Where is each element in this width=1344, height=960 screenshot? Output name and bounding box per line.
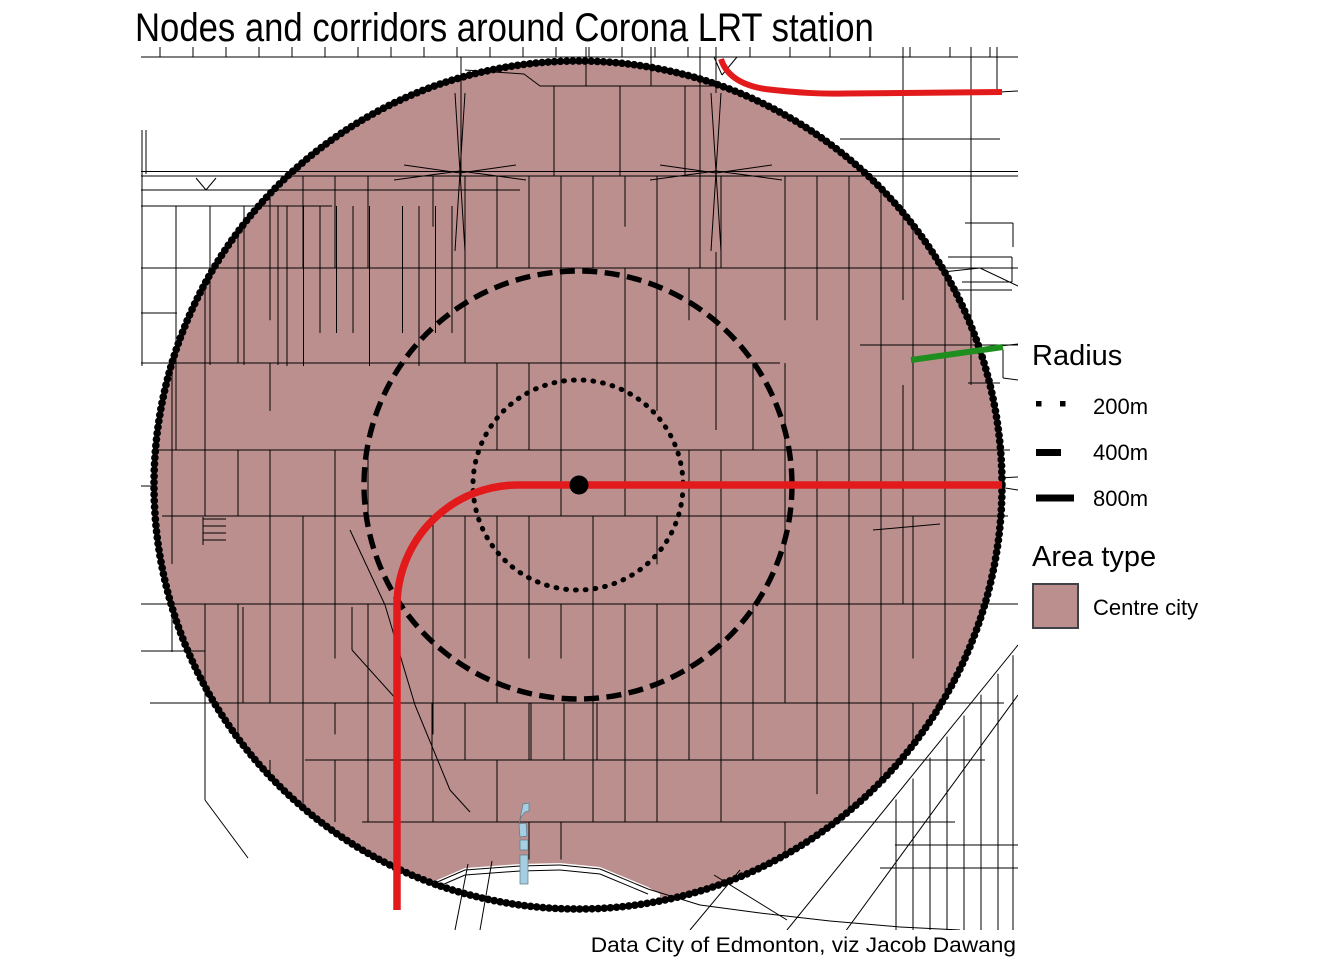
svg-text:200m: 200m (1093, 394, 1148, 419)
svg-text:Centre city: Centre city (1093, 595, 1198, 620)
svg-text:Nodes and corridors around Cor: Nodes and corridors around Corona LRT st… (135, 5, 874, 50)
svg-text:Radius: Radius (1032, 340, 1122, 372)
svg-text:Data City of Edmonton, viz Jac: Data City of Edmonton, viz Jacob Dawang (591, 933, 1016, 957)
svg-text:Area type: Area type (1032, 541, 1156, 573)
svg-text:800m: 800m (1093, 486, 1148, 511)
svg-text:400m: 400m (1093, 440, 1148, 465)
